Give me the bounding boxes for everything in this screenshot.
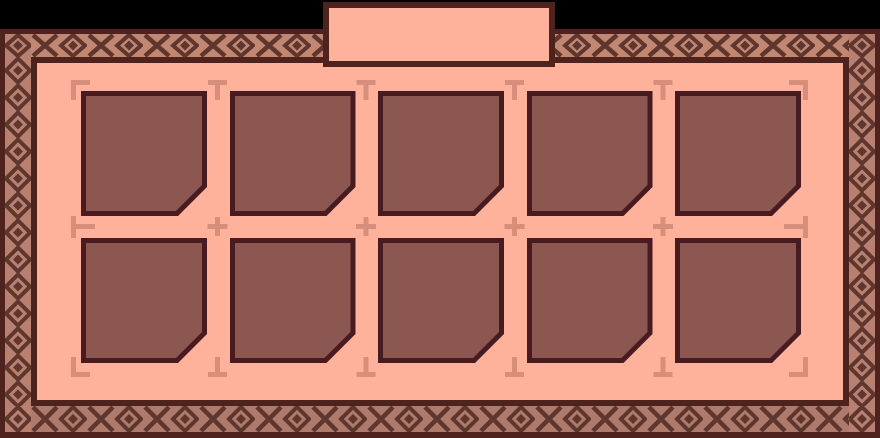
inventory-slot-well [86, 96, 202, 211]
inventory-slot[interactable] [527, 238, 653, 363]
inventory-slot-well [532, 243, 648, 358]
inventory-slot[interactable] [675, 238, 801, 363]
border-corner-tr [849, 34, 875, 57]
inventory-slot-well [383, 243, 499, 358]
inventory-slot[interactable] [81, 91, 207, 216]
border-pattern-right [849, 57, 875, 406]
inventory-slot-well [680, 243, 796, 358]
inventory-slot-well [680, 96, 796, 211]
inventory-slot[interactable] [527, 91, 653, 216]
inventory-panel [0, 29, 880, 438]
inventory-slot[interactable] [230, 91, 356, 216]
inventory-slot[interactable] [81, 238, 207, 363]
inventory-slot[interactable] [378, 238, 504, 363]
border-corner-bl [5, 406, 31, 432]
border-pattern-bottom [31, 406, 849, 432]
inventory-slot-well [383, 96, 499, 211]
border-pattern-left [5, 57, 31, 406]
inventory-slot-well [86, 243, 202, 358]
inventory-slot[interactable] [378, 91, 504, 216]
border-corner-br [849, 406, 875, 432]
inventory-slot-well [235, 243, 351, 358]
game-screen [0, 0, 880, 438]
panel-tab[interactable] [323, 2, 555, 67]
inventory-slot[interactable] [675, 91, 801, 216]
inventory-slot[interactable] [230, 238, 356, 363]
inventory-slot-well [532, 96, 648, 211]
border-corner-tl [5, 34, 31, 57]
inventory-slot-well [235, 96, 351, 211]
